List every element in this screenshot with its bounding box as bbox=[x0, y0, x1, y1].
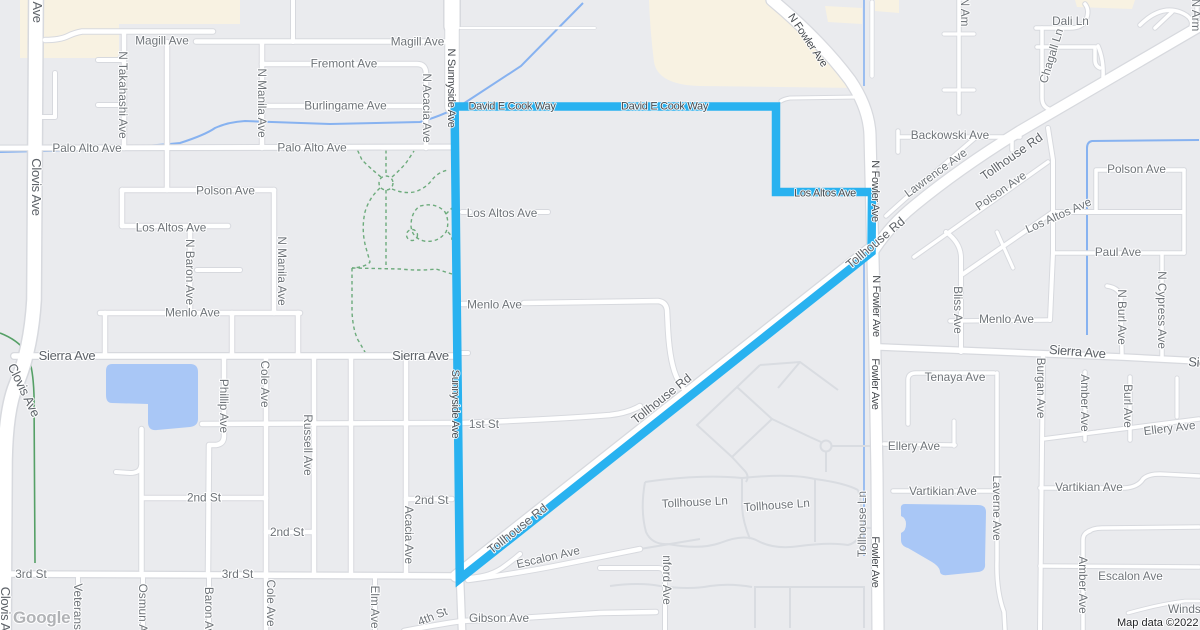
svg-text:Baron Ave: Baron Ave bbox=[202, 587, 216, 630]
svg-text:N Arm: N Arm bbox=[1189, 0, 1200, 32]
svg-text:N Baron Ave: N Baron Ave bbox=[183, 239, 197, 305]
svg-text:Amber Ave: Amber Ave bbox=[1076, 556, 1090, 614]
svg-text:Clovis Ave: Clovis Ave bbox=[30, 0, 45, 23]
svg-text:Clovis Av: Clovis Av bbox=[0, 587, 13, 630]
svg-text:Osmun Ave: Osmun Ave bbox=[136, 584, 150, 630]
svg-text:Map data ©2022: Map data ©2022 bbox=[1117, 617, 1199, 629]
svg-text:Sierra Ave: Sierra Ave bbox=[39, 348, 96, 363]
svg-text:Menlo Ave: Menlo Ave bbox=[165, 306, 220, 320]
svg-text:Sunnyside Ave: Sunnyside Ave bbox=[449, 370, 461, 439]
svg-text:Google: Google bbox=[13, 608, 70, 627]
svg-text:N Cypress Ave: N Cypress Ave bbox=[1155, 271, 1169, 349]
svg-text:Fowler Ave: Fowler Ave bbox=[869, 358, 881, 409]
svg-text:N Sunnyside Ave: N Sunnyside Ave bbox=[445, 48, 457, 127]
svg-text:Cole Ave: Cole Ave bbox=[264, 579, 278, 626]
svg-text:Windsor: Windsor bbox=[1168, 602, 1200, 616]
svg-text:Menlo Ave: Menlo Ave bbox=[467, 298, 522, 312]
svg-text:Los Altos Ave: Los Altos Ave bbox=[136, 221, 207, 235]
svg-text:2nd St: 2nd St bbox=[270, 525, 305, 539]
svg-text:N Manila Ave: N Manila Ave bbox=[255, 68, 269, 138]
svg-text:Paul Ave: Paul Ave bbox=[1095, 245, 1142, 259]
svg-text:Laverne Ave: Laverne Ave bbox=[990, 475, 1004, 541]
svg-text:Polson Ave: Polson Ave bbox=[1107, 162, 1166, 176]
svg-text:Los Altos Ave: Los Altos Ave bbox=[794, 188, 856, 200]
svg-text:Acacia Ave: Acacia Ave bbox=[402, 506, 416, 565]
svg-text:N Acacia Ave: N Acacia Ave bbox=[420, 73, 434, 143]
svg-text:N Fowler Ave: N Fowler Ave bbox=[869, 160, 881, 222]
svg-text:Veterans Ave: Veterans Ave bbox=[71, 583, 85, 630]
svg-text:2nd St: 2nd St bbox=[414, 493, 449, 507]
svg-text:2nd St: 2nd St bbox=[187, 491, 222, 505]
svg-text:Sierra Ave: Sierra Ave bbox=[392, 348, 449, 363]
svg-text:Clovis Ave: Clovis Ave bbox=[29, 158, 44, 216]
svg-text:N Manila Ave: N Manila Ave bbox=[275, 236, 289, 306]
svg-text:Amber Ave: Amber Ave bbox=[1078, 374, 1092, 432]
svg-text:Phillip Ave: Phillip Ave bbox=[217, 379, 231, 434]
svg-text:Fremont Ave: Fremont Ave bbox=[311, 57, 378, 71]
svg-text:David E Cook Way: David E Cook Way bbox=[468, 101, 556, 113]
svg-text:3rd St: 3rd St bbox=[15, 567, 47, 581]
svg-text:Russell Ave: Russell Ave bbox=[301, 414, 315, 476]
svg-text:nford Ave: nford Ave bbox=[660, 555, 674, 605]
svg-text:Ellery Ave: Ellery Ave bbox=[888, 439, 941, 453]
svg-text:Bliss Ave: Bliss Ave bbox=[951, 286, 965, 334]
svg-text:Backowski Ave: Backowski Ave bbox=[911, 128, 990, 142]
svg-text:Palo Alto Ave: Palo Alto Ave bbox=[277, 141, 347, 155]
svg-text:Elm Ave: Elm Ave bbox=[368, 585, 382, 628]
svg-text:Vartikian Ave: Vartikian Ave bbox=[1055, 480, 1123, 494]
svg-text:Dali Ln: Dali Ln bbox=[1052, 14, 1089, 28]
svg-text:N Fowler Ave: N Fowler Ave bbox=[870, 275, 882, 337]
svg-text:Burlingame Ave: Burlingame Ave bbox=[304, 99, 387, 113]
svg-text:N Takahashi Ave: N Takahashi Ave bbox=[116, 51, 130, 139]
svg-text:N Burl Ave: N Burl Ave bbox=[1115, 289, 1129, 345]
svg-text:David E Cook Way: David E Cook Way bbox=[621, 101, 709, 113]
svg-text:Los Altos Ave: Los Altos Ave bbox=[467, 206, 538, 220]
svg-text:N Am: N Am bbox=[958, 0, 972, 27]
svg-text:Polson Ave: Polson Ave bbox=[196, 184, 255, 198]
svg-text:Sier: Sier bbox=[1188, 354, 1200, 371]
svg-text:1st St: 1st St bbox=[469, 417, 500, 431]
svg-text:Vartikian Ave: Vartikian Ave bbox=[909, 484, 977, 498]
svg-text:Menlo Ave: Menlo Ave bbox=[979, 312, 1034, 326]
svg-text:Cole Ave: Cole Ave bbox=[258, 360, 272, 407]
svg-text:Palo Alto Ave: Palo Alto Ave bbox=[52, 141, 122, 155]
svg-text:Tollhouse Ln: Tollhouse Ln bbox=[855, 491, 869, 557]
svg-text:Burl Ave: Burl Ave bbox=[1121, 384, 1135, 428]
svg-text:Escalon Ave: Escalon Ave bbox=[1098, 569, 1163, 583]
svg-text:Magill Ave: Magill Ave bbox=[391, 35, 445, 49]
svg-text:Fowler Ave: Fowler Ave bbox=[869, 536, 881, 587]
svg-text:Magill Ave: Magill Ave bbox=[135, 34, 189, 48]
svg-text:Gibson Ave: Gibson Ave bbox=[469, 611, 530, 625]
svg-text:3rd St: 3rd St bbox=[222, 567, 254, 581]
svg-text:Burgan Ave: Burgan Ave bbox=[1034, 358, 1048, 419]
svg-text:Tenaya Ave: Tenaya Ave bbox=[925, 370, 986, 384]
